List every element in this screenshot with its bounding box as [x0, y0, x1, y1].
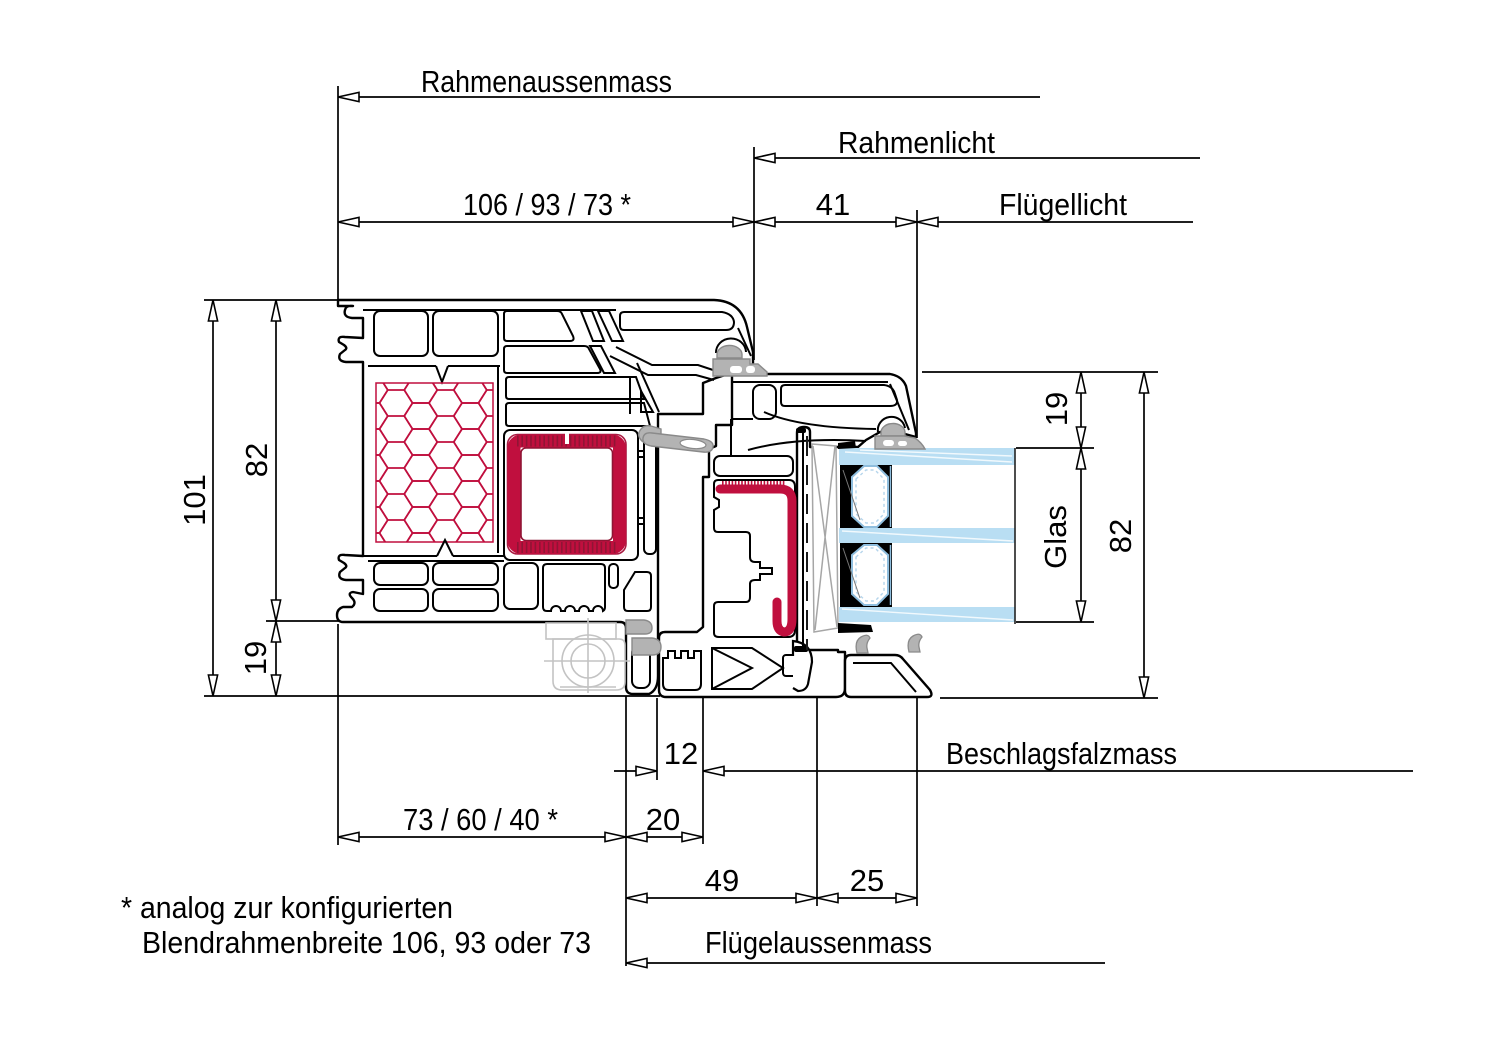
svg-text:101: 101: [177, 474, 212, 526]
svg-text:Flügelaussenmass: Flügelaussenmass: [705, 925, 932, 960]
svg-text:25: 25: [850, 863, 884, 898]
svg-text:12: 12: [664, 736, 698, 771]
svg-text:49: 49: [705, 863, 739, 898]
svg-text:41: 41: [816, 187, 850, 222]
svg-text:73 / 60 / 40 *: 73 / 60 / 40 *: [403, 802, 558, 837]
svg-text:82: 82: [1103, 519, 1138, 553]
svg-text:* analog zur konfigurierten: * analog zur konfigurierten: [121, 890, 453, 925]
svg-text:Glas: Glas: [1038, 505, 1073, 569]
svg-text:Blendrahmenbreite 106, 93 oder: Blendrahmenbreite 106, 93 oder 73: [142, 925, 591, 960]
svg-text:Flügellicht: Flügellicht: [999, 187, 1127, 222]
svg-text:Rahmenlicht: Rahmenlicht: [838, 125, 995, 160]
svg-text:19: 19: [238, 641, 273, 675]
svg-text:Beschlagsfalzmass: Beschlagsfalzmass: [946, 736, 1177, 771]
svg-text:Rahmenaussenmass: Rahmenaussenmass: [421, 64, 672, 99]
svg-text:20: 20: [646, 802, 680, 837]
svg-text:19: 19: [1039, 392, 1074, 426]
svg-text:106 / 93 / 73 *: 106 / 93 / 73 *: [463, 187, 631, 222]
svg-text:82: 82: [239, 443, 274, 477]
